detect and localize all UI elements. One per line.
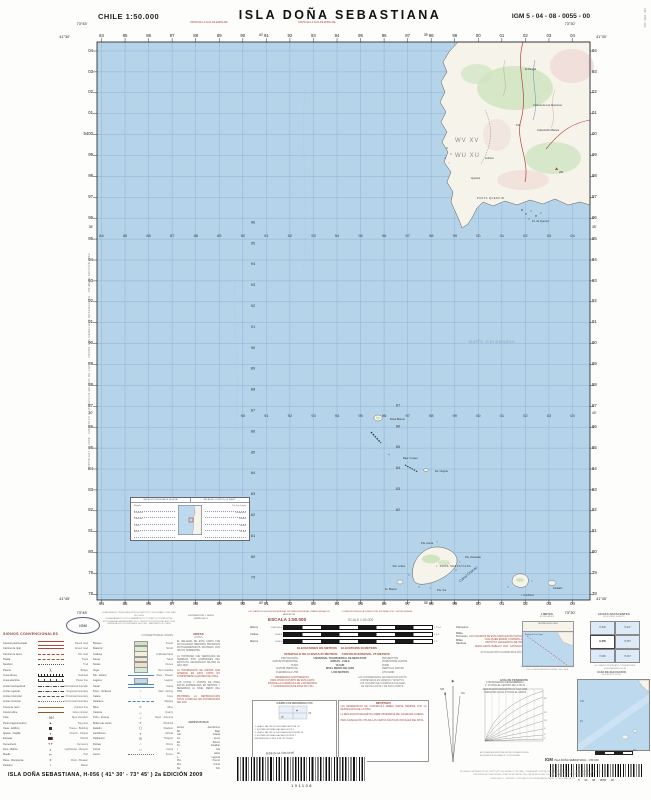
edge-grid-label: 97: [592, 195, 612, 199]
legend-symbol-glyph: ✈: [139, 732, 142, 736]
interior-grid-label: 96: [382, 413, 387, 418]
interior-grid-label: 97: [405, 413, 410, 418]
note-paragraph: PROHIBIDA LA REPRODUCCIÓN TOTAL O PARCIA…: [177, 696, 220, 705]
legend-label-en: Quarry: [154, 711, 173, 714]
legend-symbol-glyph: ✶: [49, 748, 52, 752]
legend-symbol-glyph: ✝✝: [48, 742, 53, 746]
important-lines: LAS REFERENCIAS DE CUADRÍCULA DEBEN DARS…: [341, 706, 427, 723]
legend-symbol-shape: [38, 648, 64, 649]
interior-grid-label: 94: [251, 261, 256, 266]
svg-text:85: 85: [308, 712, 311, 715]
slope-tick-label: 1°: [544, 738, 546, 740]
elevation-guide-box: 100 50: [577, 679, 650, 751]
legend-symbol: ∴: [127, 742, 154, 746]
legend-symbol-shape: [128, 675, 154, 676]
legend-label-es: Bosque: [93, 642, 127, 645]
legend-symbol-glyph: ≈: [50, 763, 52, 767]
legend-label-es: Mina: [93, 706, 127, 709]
legend-symbol-glyph: ◇: [139, 711, 141, 715]
interior-grid-label: 00: [476, 233, 481, 238]
legend-symbol: · 967: [37, 716, 64, 720]
edge-grid-label: 79: [592, 571, 612, 575]
scale-bar-numbers: 1.000 0: [260, 634, 283, 636]
edge-grid-label: 03: [542, 602, 556, 606]
interior-grid-label: 88: [251, 387, 256, 392]
utm-example-lines: 1. LEA EL VALOR DE LA LÍNEA VERTICAL 952…: [255, 726, 335, 742]
legend-label-es: Vega: [93, 669, 127, 672]
abbreviation-full: Río: [216, 767, 220, 771]
interior-grid-label: 92: [288, 413, 293, 418]
legend-label-es: Cementerio: [3, 743, 37, 746]
signos-title-en: CONVENTIONAL SIGNS: [110, 633, 173, 637]
legend-label-en: Trail: [64, 663, 88, 666]
interior-grid-label: 83: [251, 491, 256, 496]
legend-label-en: Mine: [154, 706, 173, 709]
interior-grid-label: 02: [523, 233, 528, 238]
legend-label-en: Airfield: [154, 732, 173, 735]
interior-grid-label: 95: [358, 413, 363, 418]
legend-label-en: Gravel road: [64, 647, 88, 650]
hojas-cell: H-047: [615, 621, 640, 635]
scale-note-left: LA CUADRÍCULA ESTÁ REFERIDA AL SISTEMA U…: [248, 611, 330, 616]
legend-symbol: [127, 675, 154, 676]
interior-grid-label: 04: [570, 413, 575, 418]
interior-grid-label: 04: [570, 233, 575, 238]
legend-symbol: [37, 686, 64, 687]
legend-symbol-shape: [38, 659, 64, 660]
interior-grid-label: 89: [217, 233, 222, 238]
legend-label-en: Cove: [154, 695, 173, 698]
interior-grid-label: 91: [264, 413, 269, 418]
utm-example-diagram: 95 85: [255, 705, 332, 721]
zone-designator-label: WU XU: [455, 153, 480, 159]
legend-symbol-shape: [38, 691, 64, 692]
edge-grid-label: 98: [592, 174, 612, 178]
scale-bar-numbers: 1 2: [433, 641, 454, 643]
scale-bar-row: Metros1.000 01 2Millas Náuticas: [228, 638, 443, 645]
edge-grid-label: 95: [354, 34, 368, 38]
place-label: 291: [559, 170, 564, 174]
edge-grid-label: 40': [253, 34, 269, 37]
legend-symbol-glyph: )(: [49, 668, 51, 672]
important-line: LAS REFERENCIAS DE CUADRÍCULA DEBEN DARS…: [341, 706, 427, 712]
pendiente-title-en: SLOPE GUIDE: [480, 682, 548, 684]
legend-symbol-glyph: ✳: [139, 721, 142, 725]
abrev-list: Aeród.AeródromoBo.BajoCal.CaletaCo.Cerro…: [177, 726, 220, 770]
credit-line: IMPRESA EN LOS TALLERES DEL IGM · SANTIA…: [102, 623, 176, 626]
edge-grid-label: 01: [592, 111, 612, 115]
edge-grid-label: 93: [592, 279, 612, 283]
place-label: I. DOÑA SEBASTIANA: [436, 565, 471, 568]
left-margin-credit: COPYRIGHT © 2009 · INSTITUTO GEOGRÁFICO …: [88, 250, 91, 470]
legend-label-es: Casa - Edificio: [3, 727, 37, 730]
legend-symbol: [127, 667, 154, 673]
interior-grid-label: 85: [396, 444, 401, 449]
inset-row-value: De Los Lagos: [205, 505, 246, 512]
hojas-cell: H-046: [590, 621, 615, 635]
edge-grid-label: 80: [592, 550, 612, 554]
legend-symbol-shape: [38, 712, 64, 713]
abbreviation-short: Ro.: [177, 767, 181, 771]
edge-grid-label: 96: [377, 34, 391, 38]
edge-note-right: LÍMITE DE LA FAJA DE EMPALME: [298, 22, 360, 25]
igm-product-line: IGM ISLA DOÑA SEBASTIANA - 1:50.000: [545, 757, 648, 762]
legend-label-es: Torre - Antena: [93, 716, 127, 719]
legend-symbol: ◇: [127, 711, 154, 715]
edge-grid-label: 35': [418, 602, 434, 605]
legend-symbol: )(: [37, 668, 64, 672]
legend-symbol: ⊥: [127, 716, 154, 720]
distribution-line: WWW.IGM.CL: [180, 618, 222, 621]
legend-label-es: Límite internacional: [3, 685, 37, 688]
scale-label-en: SCALE 1:50.000: [348, 618, 373, 622]
edge-grid-label: 84: [592, 467, 612, 471]
legend-label-en: Power line: [64, 679, 88, 682]
important-title: IMPORTANTE: [341, 703, 427, 705]
interior-grid-label: 93: [311, 413, 316, 418]
edge-grid-label: 90: [592, 341, 612, 345]
interior-grid-label: 87: [251, 408, 256, 413]
edge-grid-label: 04: [592, 49, 612, 53]
legend-label-en: Church - Chapel: [64, 732, 88, 735]
legend-label-en: Index contour: [64, 711, 88, 714]
legend-label-es: Laguna: [93, 679, 127, 682]
legend-symbol: ✈: [127, 732, 154, 736]
edge-grid-label: 99: [592, 153, 612, 157]
interior-grid-label: 88: [193, 233, 198, 238]
place-label: Pta. Arena: [421, 541, 434, 545]
legend-symbol: [37, 691, 64, 692]
edge-grid-label: 04: [566, 34, 580, 38]
interior-grid-label: 91: [264, 233, 269, 238]
legend-label-en: Cultivated land: [154, 653, 173, 656]
svg-text:NM: NM: [440, 687, 444, 691]
edge-grid-label: 88: [189, 602, 203, 606]
inset-header-left: UBICACIÓN RELATIVA DE LA HOJA: [131, 498, 191, 502]
edge-grid-label: 82: [592, 508, 612, 512]
inset-row-value: Maullín: [205, 518, 246, 525]
legend-column-1: Camino pavimentadoPaved roadCamino de ri…: [3, 641, 88, 768]
edge-grid-label: 85: [118, 602, 132, 606]
legend-label-es: Línea férrea: [3, 674, 37, 677]
legend-symbol-glyph: Ⓗ: [139, 736, 142, 741]
legend-symbol-shape: [38, 664, 64, 665]
edge-grid-label: 01: [495, 602, 509, 606]
place-label: Farallón: [553, 586, 563, 590]
legend-label-en: Regional boundary: [64, 690, 88, 693]
projection-row: CUADRÍCULA UTM1.000 METROSUTM GRID: [226, 671, 448, 674]
inset-row-value: Llanquihue: [205, 512, 246, 519]
interior-grid-label: 82: [251, 512, 256, 517]
legend-symbol-shape: [38, 707, 64, 708]
edge-note-left: LÍMITE DE LA FAJA DE EMPALME: [190, 22, 252, 25]
declination-diagram: ✶ NM NG: [436, 672, 470, 768]
projection-term-es: CUADRÍCULA UTM: [226, 671, 301, 674]
legend-symbol-shape: [49, 727, 53, 730]
interior-grid-label: 01: [500, 233, 505, 238]
legend-label-en: Provincial boundary: [64, 695, 88, 698]
interior-grid-label: 85: [123, 233, 128, 238]
inset-row: Huso: [134, 531, 175, 538]
interior-grid-label: 95: [358, 233, 363, 238]
inset-rows-right: De Los LagosLlanquihueMaullínH-05618 Sur: [203, 503, 249, 536]
edge-grid-label: 78: [592, 592, 612, 596]
legend-label-es: Estadio: [93, 727, 127, 730]
igm-product-name: ISLA DOÑA SEBASTIANA - 1:50.000: [554, 759, 598, 762]
interior-grid-label: 00: [476, 413, 481, 418]
legend-label-es: Cantera: [93, 711, 127, 714]
legend-symbol-shape: [128, 684, 154, 688]
svg-text:50: 50: [580, 720, 583, 723]
interior-grid-label: 99: [453, 233, 458, 238]
legend-label-en: Scrub: [154, 647, 173, 650]
interior-grid-label: 94: [335, 413, 340, 418]
right-margin-code: C3b · 0855 · IGM: [643, 8, 646, 68]
legend-symbol: ✝: [37, 732, 64, 736]
edge-grid-label: 02: [592, 90, 612, 94]
edge-grid-label: 90: [236, 602, 250, 606]
elevguide-scalebar: [595, 751, 633, 755]
place-label: Colonia Río Blanco: [537, 128, 560, 132]
interior-grid-label: 86: [396, 423, 401, 428]
edge-grid-label: 90: [236, 34, 250, 38]
legend-label-en: Fence: [154, 753, 173, 756]
legend-label-es: Roca - Rompiente: [3, 759, 37, 762]
scale-bar-numbers: 1 2 3 4: [433, 627, 454, 629]
interior-grid-label: 95: [251, 240, 256, 245]
legend-symbol-shape: [134, 678, 148, 684]
legend-symbol: [37, 712, 64, 713]
scale-bar: [283, 639, 433, 643]
legend-symbol: ✕: [127, 705, 154, 709]
edge-grid-label: 01: [73, 111, 93, 115]
abrev-title: ABREVIATURAS: [177, 721, 220, 724]
interior-grid-label: 89: [251, 366, 256, 371]
legend-label-es: Faro - Baliza: [3, 748, 37, 751]
edge-grid-label: 82: [73, 508, 93, 512]
smallprint-line: WWW.IGM.CL · VENTAS Y DISTRIBUCIÓN: NUEV…: [420, 778, 645, 781]
interior-grid-label: 84: [251, 470, 256, 475]
edge-grid-label: 83: [592, 488, 612, 492]
utm-example-box: EJEMPLO DE REFERENCIA UTM 95 85 1. LEA E…: [252, 700, 337, 762]
interval-en: CONTOUR INTERVAL 25 METERS: [342, 652, 390, 656]
edge-grid-label: 03: [542, 34, 556, 38]
scale-bar-row: Metros1.000 500 01 2 3 4Kilómetros: [228, 624, 443, 631]
important-box: IMPORTANTE LAS REFERENCIAS DE CUADRÍCULA…: [338, 700, 429, 762]
interior-grid-label: 87: [396, 402, 401, 407]
legend-label-es: Puente: [3, 669, 37, 672]
place-label: Bajo Yunque: [403, 456, 418, 460]
legend-symbol-shape: [128, 701, 154, 702]
place-label: Pta. Lobos: [393, 564, 406, 568]
inset-rows-left: RegiónProvinciaComunaCartaHuso: [131, 503, 177, 536]
scale-label: ESCALA 1:50.000: [268, 617, 306, 622]
legend-label-en: Communal boundary: [64, 700, 88, 703]
edge-grid-label: 92: [283, 34, 297, 38]
legend-label-en: Forest: [154, 642, 173, 645]
legend-label-es: Muelle: [3, 753, 37, 756]
legend-symbol: [127, 754, 154, 755]
legend-label-en: House - Building: [64, 727, 88, 730]
edge-grid-label: 85: [118, 34, 132, 38]
edge-grid-label: 00: [592, 132, 612, 136]
inset-row: Carta: [134, 525, 175, 532]
legend-label-en: Lagoon: [154, 679, 173, 682]
interior-grid-label: 86: [146, 233, 151, 238]
legend-symbol-glyph: ✝: [49, 732, 52, 736]
edge-grid-label: 78: [73, 592, 93, 596]
edge-grid-label: 85: [592, 446, 612, 450]
legend-label-en: Spot elevation: [64, 716, 88, 719]
edge-grid-label: 97: [401, 34, 415, 38]
legend-label-en: Paved road: [64, 642, 88, 645]
legend-column-2: BosqueForestMatorralScrubCultivosCultiva…: [93, 641, 173, 758]
interior-grid-label: 03: [547, 413, 552, 418]
note-paragraph: LA TOPONIMIA FUE VERIFICADA EN TERRENO P…: [177, 656, 220, 668]
scale-bar-numbers: 1 2 3: [433, 634, 454, 636]
edge-grid-label: 86: [142, 602, 156, 606]
edge-grid-label: 40': [253, 602, 269, 605]
legend-symbol: ▲: [37, 721, 64, 725]
scale-bar-unit: Metros: [228, 626, 260, 629]
limites-box: REPÚBLICA DE CHILE Región de Los Lagos: [522, 621, 574, 667]
legend-label-es: Molino de viento: [93, 722, 127, 725]
legend-label-en: Track: [64, 658, 88, 661]
interior-grid-label: 82: [396, 507, 401, 512]
edge-grid-label: 87: [165, 34, 179, 38]
edge-grid-label: 5400: [73, 132, 93, 136]
legend-symbol: ✳: [127, 721, 154, 725]
slope-tick-label: 45°: [544, 698, 547, 700]
limites-country: REPÚBLICA DE CHILE: [523, 622, 573, 632]
note-paragraph: LA INFORMACIÓN DE LÍMITES QUE APARECE EN…: [177, 670, 220, 679]
interior-grid-label: 93: [251, 282, 256, 287]
legend-label-en: Trig point: [64, 722, 88, 725]
scale-bar: [283, 625, 433, 629]
edge-grid-label: 87: [592, 404, 612, 408]
sea-name-label: Golfo Coronados: [469, 339, 516, 344]
reference-paragraph-right: LAS COORDENADAS GEOGRÁFICAS ESTÁNEXPRESA…: [340, 677, 425, 689]
legend-label-en: Ruins: [154, 743, 173, 746]
edge-grid-label: 93: [306, 34, 320, 38]
legend-label-en: Well - Spring: [154, 690, 173, 693]
legend-symbol: [127, 701, 154, 702]
notes-column: EL RELLENO DE ESTA CARTA FUE ACTUALIZADO…: [177, 641, 220, 708]
inset-minimap: [177, 503, 203, 536]
edge-grid-label: 96: [377, 602, 391, 606]
legend-label-en: School: [64, 737, 88, 740]
legend-symbol-glyph: ⊥: [139, 716, 142, 720]
edge-grid-label: 79: [73, 571, 93, 575]
legend-symbol-shape: [134, 667, 148, 673]
legend-label-en: Heliport: [154, 737, 173, 740]
legend-symbol-shape: [38, 686, 64, 687]
scale-bar-unit: Metros: [228, 640, 260, 643]
legend-label-es: Línea eléctrica: [3, 679, 37, 682]
projection-value: 1.000 METROS: [301, 671, 379, 674]
legend-label-es: Dunas: [93, 663, 127, 666]
interior-grid-label: 96: [382, 233, 387, 238]
legend-symbol-shape: [38, 696, 64, 697]
hojas-row: H-066H-067: [590, 649, 640, 663]
abbreviation-row: Ro.Río: [177, 767, 220, 771]
edge-grid-label: 92: [592, 299, 612, 303]
legend-label-es: Límite regional: [3, 690, 37, 693]
place-label: I. Cochinos: [521, 593, 535, 597]
inset-row: Región: [134, 505, 175, 512]
legend-label-en: Cemetery: [64, 743, 88, 746]
legend-label-es: Pantano: [3, 764, 37, 767]
edge-grid-label: 92: [283, 602, 297, 606]
edge-grid-label: 73°45': [60, 612, 104, 616]
legend-label-en: Railroad: [64, 674, 88, 677]
legend-row: Pantano≈Marsh: [3, 763, 88, 768]
edge-grid-label: 94: [330, 602, 344, 606]
interior-grid-label: 91: [251, 324, 256, 329]
legend-symbol: ◯: [127, 726, 154, 730]
legend-label-en: Dirt road: [64, 653, 88, 656]
scale-bar-unit: Yardas: [228, 633, 260, 636]
mainland: [440, 42, 594, 228]
legend-row: CercoFence: [93, 752, 173, 757]
hojas-cell: H-067: [615, 649, 640, 663]
interior-grid-label: 94: [335, 233, 340, 238]
elev-en: ELEVATIONS IN METERS: [341, 646, 377, 650]
legend-label-en: River - Stream: [154, 674, 173, 677]
legend-label-en: Lighthouse - Beacon: [64, 748, 88, 751]
edge-grid-label: 99: [448, 602, 462, 606]
edge-grid-label: 99: [448, 34, 462, 38]
scale-bar-numbers: 1.000 0: [260, 641, 283, 643]
inset-info-box: UBICACIÓN RELATIVA DE LA HOJA RELATIVE L…: [130, 497, 250, 541]
legend-symbol: ⌣: [127, 695, 154, 699]
legend-label-es: Límite comunal: [3, 700, 37, 703]
edge-grid-label: 96: [592, 216, 612, 220]
edge-grid-label: 02: [73, 90, 93, 94]
legend-label-en: International boundary: [64, 685, 88, 688]
legend-symbol-shape: [38, 679, 64, 682]
legend-symbol: [37, 707, 64, 708]
utm-example-line: REFERENCIA COMPLETA: WV 953857: [255, 738, 335, 741]
inset-row-value: 18 Sur: [205, 531, 246, 538]
place-label: Pta. Sur: [437, 588, 447, 592]
legend-symbol-glyph: ◯: [139, 726, 143, 730]
legend-label-es: Canal: [93, 685, 127, 688]
edge-grid-label: 95: [592, 237, 612, 241]
reference-line: DE OESTE A ESTE Y DE SUR A NORTE.: [340, 686, 425, 689]
legend-label-en: Pier: [64, 753, 88, 756]
edge-grid-label: 94: [592, 258, 612, 262]
hojas-title-en: ADJOINING SHEETS: [584, 616, 644, 618]
svg-text:100: 100: [580, 700, 585, 703]
legend-label-es: Camino de ripio: [3, 647, 37, 650]
edge-grid-label: 84: [95, 34, 109, 38]
limites-caption-line: Y NO COMPROMETEN AL ESTADO DE CHILE: [516, 669, 578, 672]
edge-grid-label: 81: [73, 529, 93, 533]
legend-symbol: [37, 727, 64, 730]
place-label: Colonia de Los Muermos: [533, 103, 563, 107]
reference-paragraph-left: REFERENCIA CARTOGRÁFICA:PARA CITAR UN PU…: [250, 677, 335, 689]
legend-symbol: ⊢: [37, 753, 64, 757]
important-line: PARA NAVEGACIÓN UTILICE LAS CARTAS NÁUTI…: [341, 720, 427, 723]
place-label: Fs. de Quenuir: [532, 219, 549, 223]
legend-symbol-glyph: ∴: [139, 742, 141, 746]
credits-block: ELABORADA Y PUBLICADA POR EL INSTITUTO G…: [102, 612, 176, 626]
legend-label-en: Sand: [154, 658, 173, 661]
legend-symbol-glyph: ○: [140, 689, 142, 693]
edge-grid-label: 91: [592, 320, 612, 324]
legend-label-es: Pozo - Vertiente: [93, 690, 127, 693]
